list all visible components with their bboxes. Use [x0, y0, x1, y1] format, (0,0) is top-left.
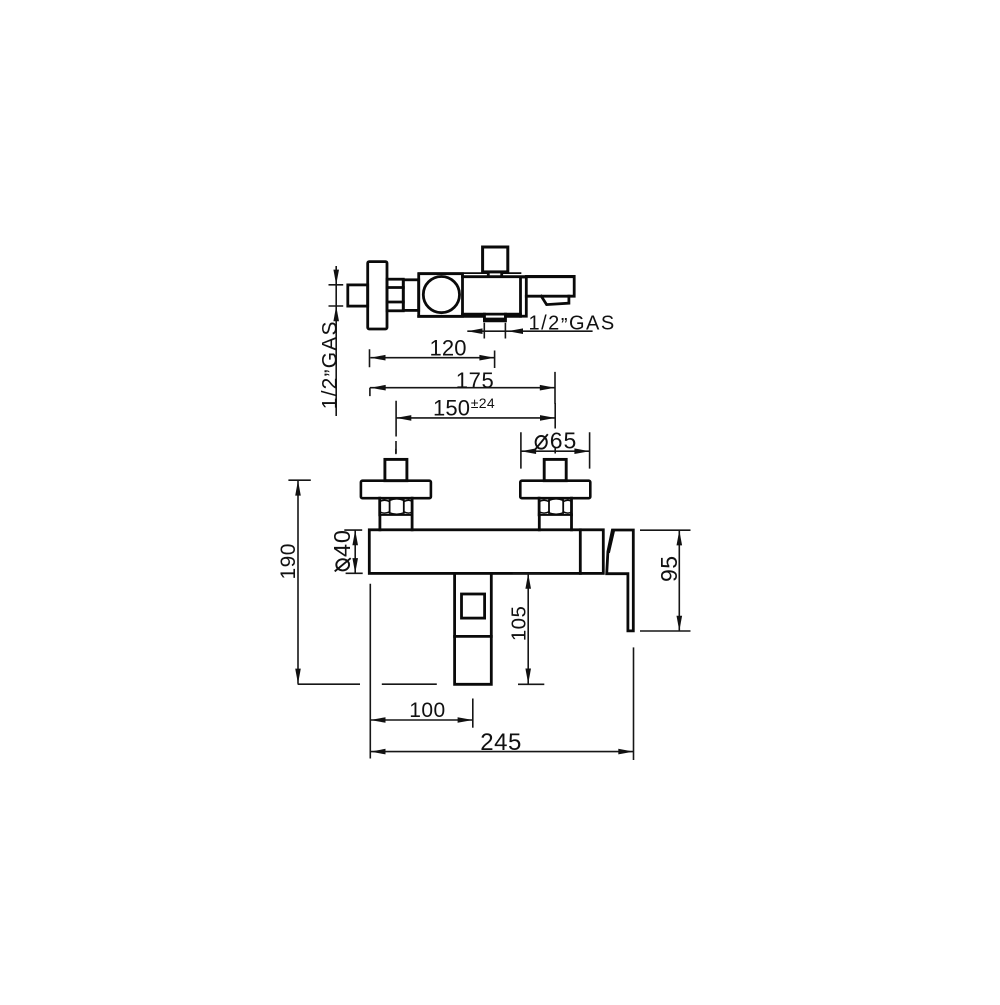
svg-text:40: 40 — [329, 530, 355, 557]
svg-text:190: 190 — [277, 544, 300, 580]
svg-text:105: 105 — [507, 606, 530, 641]
svg-text:65: 65 — [550, 428, 577, 454]
svg-text:100: 100 — [409, 699, 445, 722]
svg-text:120: 120 — [430, 336, 467, 361]
svg-text:1/2”GAS: 1/2”GAS — [529, 313, 616, 338]
svg-text:245: 245 — [480, 729, 521, 756]
svg-text:1/2”GAS: 1/2”GAS — [319, 320, 345, 409]
svg-text:±24: ±24 — [471, 395, 495, 411]
svg-text:150: 150 — [433, 395, 470, 420]
svg-text:95: 95 — [656, 556, 682, 582]
svg-text:175: 175 — [456, 368, 494, 393]
